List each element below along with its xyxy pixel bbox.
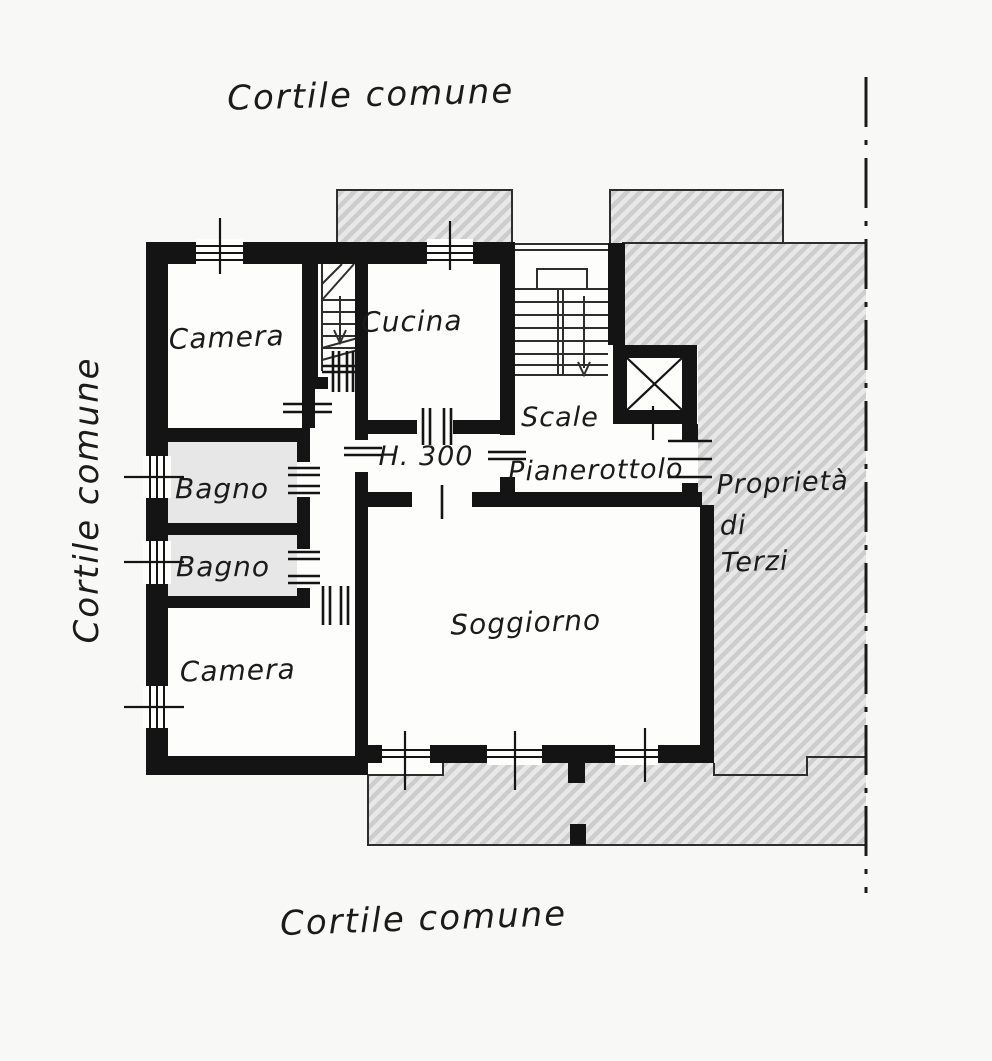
room-label-soggiorno: Soggiorno xyxy=(450,603,602,641)
label-cortile-left: Cortile comune xyxy=(67,356,107,643)
room-label-camera-top: Camera xyxy=(168,319,285,356)
floor-plan-drawing: Cortile comune Cortile comune Cortile co… xyxy=(0,0,992,1056)
svg-text:di: di xyxy=(719,510,747,542)
balcony-top-left xyxy=(337,190,512,242)
balcony-divider-stub xyxy=(570,824,586,845)
label-height-note: H. 300 xyxy=(378,441,473,472)
room-label-cucina: Cucina xyxy=(361,304,463,339)
label-pianerottolo: Pianerottolo xyxy=(508,453,684,487)
floor-plan-page: Cortile comune Cortile comune Cortile co… xyxy=(0,0,992,1056)
balcony-top-right xyxy=(610,190,783,243)
svg-text:Terzi: Terzi xyxy=(721,546,790,579)
label-cortile-top: Cortile comune xyxy=(227,71,515,119)
svg-text:Proprietà: Proprietà xyxy=(716,465,849,501)
room-label-bagno-top: Bagno xyxy=(175,472,269,505)
room-label-bagno-bottom: Bagno xyxy=(176,550,270,583)
label-scale: Scale xyxy=(521,402,599,433)
balcony-divider-stub xyxy=(568,763,585,783)
room-label-camera-bottom: Camera xyxy=(179,652,296,688)
